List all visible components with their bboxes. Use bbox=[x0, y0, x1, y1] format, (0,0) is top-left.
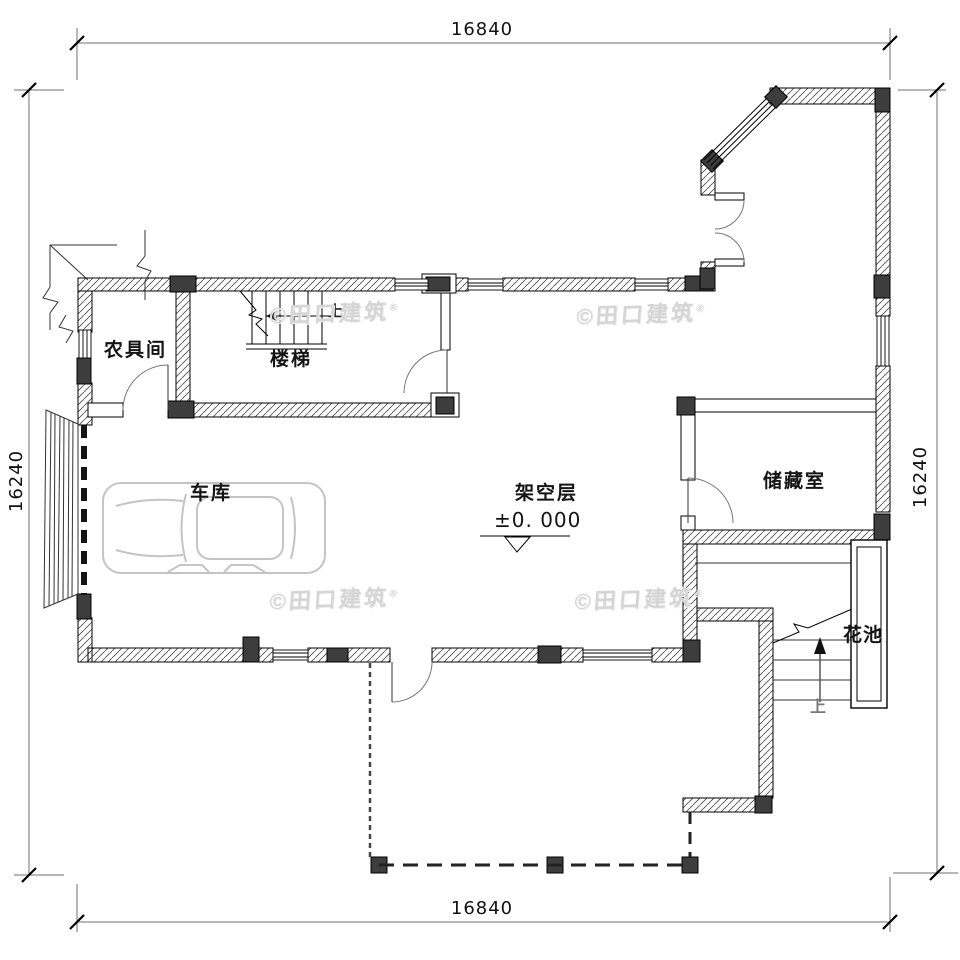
up-direction-outdoor: 上 bbox=[810, 700, 826, 716]
watermark-registered: ® bbox=[389, 302, 397, 313]
room-label-flower-bed: 花池 bbox=[843, 626, 883, 645]
watermark-text: ©田口建筑 bbox=[269, 585, 390, 614]
dimension-bottom: 16840 bbox=[451, 900, 513, 918]
porch-dashed bbox=[370, 663, 690, 865]
walls bbox=[78, 88, 890, 812]
watermark-text: ©田口建筑 bbox=[269, 299, 390, 328]
room-label-storage: 储藏室 bbox=[763, 472, 826, 491]
watermark-registered: ® bbox=[389, 588, 397, 599]
room-label-farm-tool: 农具间 bbox=[104, 341, 167, 360]
watermark: ©田口建筑® bbox=[269, 301, 398, 327]
elevation-value: ±0. 000 bbox=[494, 510, 581, 530]
dimension-left: 16240 bbox=[8, 450, 26, 512]
watermark: ©田口建筑® bbox=[574, 587, 703, 613]
watermark: ©田口建筑® bbox=[269, 587, 398, 613]
watermark-registered: ® bbox=[694, 588, 702, 599]
watermark-text: ©田口建筑 bbox=[574, 585, 695, 614]
room-label-garage: 车库 bbox=[190, 484, 232, 503]
flower-bed-box bbox=[851, 540, 887, 708]
room-label-open-floor: 架空层 bbox=[515, 484, 578, 503]
watermark-text: ©田口建筑 bbox=[576, 300, 697, 329]
dimension-top: 16840 bbox=[451, 21, 513, 39]
windows bbox=[79, 279, 889, 660]
room-label-stairs: 楼梯 bbox=[270, 350, 312, 369]
elevation-marker bbox=[480, 536, 570, 552]
watermark-registered: ® bbox=[696, 303, 704, 314]
floor-plan: 农具间 楼梯 车库 架空层 储藏室 花池 ±0. 000 上 上 16840 1… bbox=[0, 0, 960, 960]
watermark: ©田口建筑® bbox=[576, 302, 705, 328]
corner-columns-rotated bbox=[701, 86, 788, 173]
double-door bbox=[715, 193, 744, 266]
driveway-ramp bbox=[44, 410, 78, 608]
dimension-right: 16240 bbox=[912, 446, 930, 508]
